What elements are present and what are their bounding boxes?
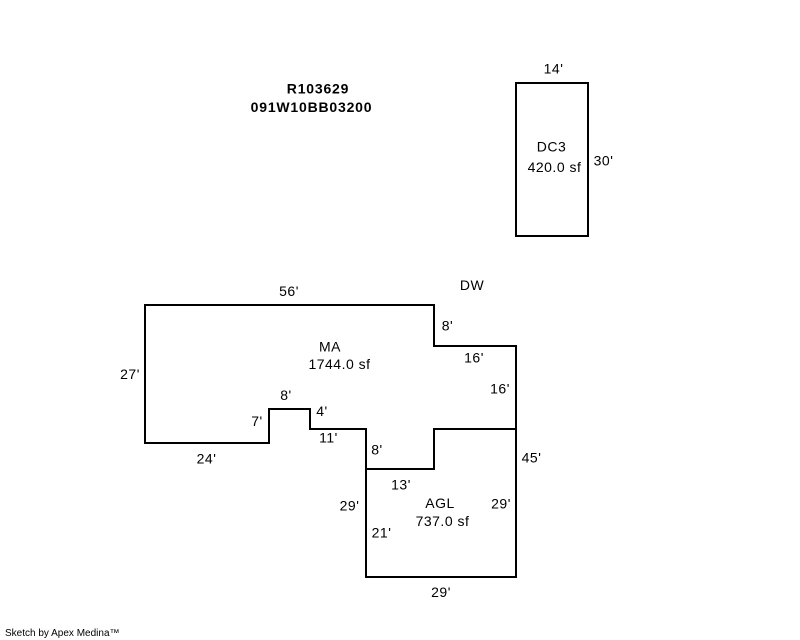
svg-text:11': 11'	[319, 430, 338, 446]
svg-text:56': 56'	[279, 283, 299, 299]
svg-text:8': 8'	[371, 442, 382, 458]
svg-text:30': 30'	[594, 153, 614, 169]
svg-text:AGL: AGL	[425, 495, 455, 511]
svg-text:4': 4'	[316, 403, 327, 419]
svg-text:45': 45'	[522, 450, 542, 466]
svg-text:MA: MA	[319, 339, 341, 355]
svg-text:DC3: DC3	[537, 139, 567, 155]
svg-text:29': 29'	[431, 584, 451, 600]
svg-text:Sketch by Apex Medina™: Sketch by Apex Medina™	[5, 628, 120, 639]
svg-text:16': 16'	[464, 350, 484, 366]
svg-text:1744.0 sf: 1744.0 sf	[308, 356, 370, 372]
svg-text:13': 13'	[391, 477, 411, 493]
svg-text:DW: DW	[460, 277, 485, 293]
svg-text:29': 29'	[340, 498, 360, 514]
svg-text:21': 21'	[372, 525, 392, 541]
svg-text:8': 8'	[442, 318, 453, 334]
svg-text:737.0 sf: 737.0 sf	[416, 513, 470, 529]
svg-text:27': 27'	[120, 366, 140, 382]
svg-text:8': 8'	[280, 387, 291, 403]
svg-text:420.0 sf: 420.0 sf	[528, 159, 582, 175]
svg-text:29': 29'	[491, 496, 511, 512]
svg-text:24': 24'	[197, 451, 217, 467]
svg-text:R103629: R103629	[287, 81, 349, 97]
svg-text:7': 7'	[251, 413, 262, 429]
svg-text:16': 16'	[490, 381, 510, 397]
svg-text:14': 14'	[544, 61, 564, 77]
svg-text:091W10BB03200: 091W10BB03200	[251, 99, 373, 115]
